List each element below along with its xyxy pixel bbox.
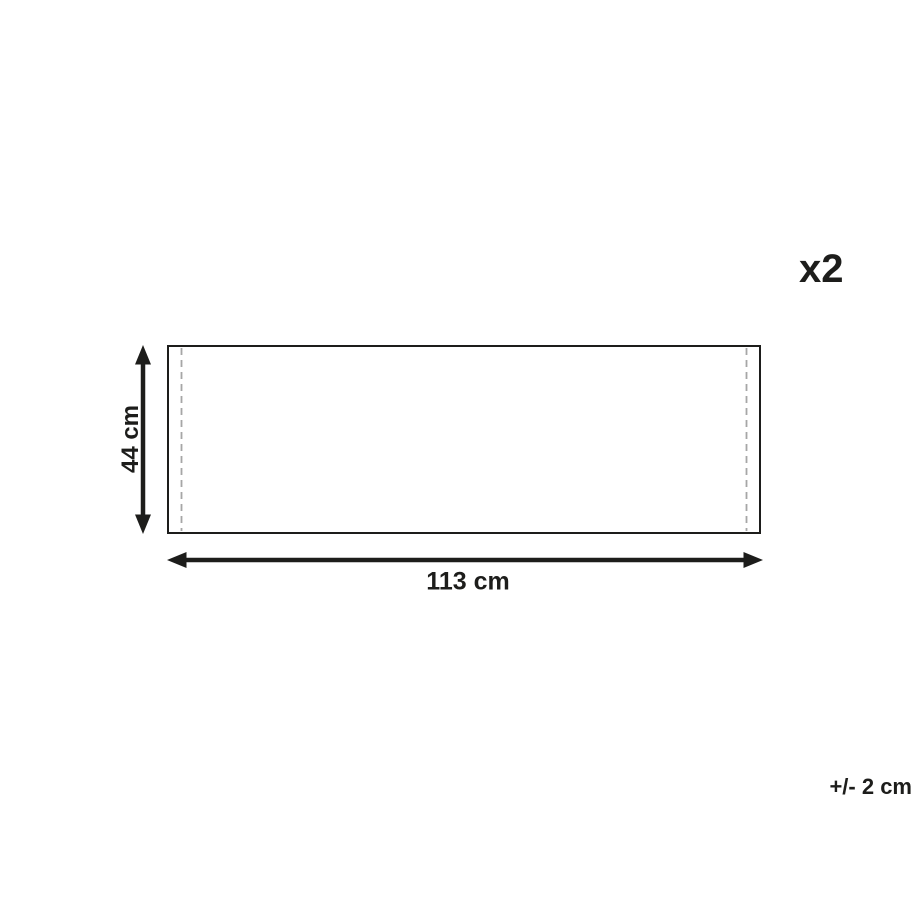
- width-dimension-label: 113 cm: [426, 570, 509, 595]
- product-dimension-diagram: x2 44 cm 113 cm +/- 2 cm: [0, 0, 920, 920]
- product-outline: [168, 346, 760, 533]
- height-dimension-label: 44 cm: [119, 405, 143, 473]
- tolerance-label: +/- 2 cm: [829, 776, 912, 798]
- width-dimension-arrow: [167, 552, 763, 568]
- quantity-label: x2: [799, 249, 844, 289]
